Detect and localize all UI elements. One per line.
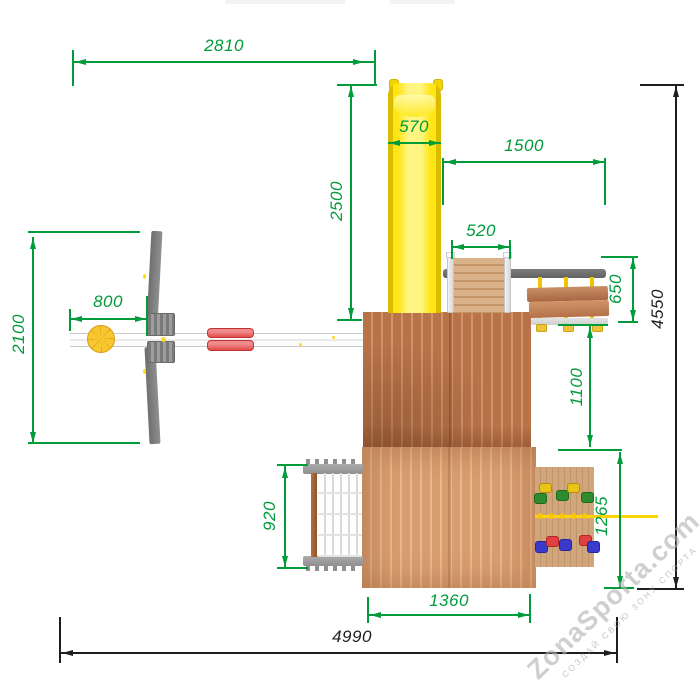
dim-label-2100: 2100 [9,314,29,354]
dim-label-2810: 2810 [204,36,244,56]
dim-label-2500: 2500 [327,181,347,221]
climbing-hold-yellow [567,483,580,493]
net-ropes [318,473,362,557]
swing-frame-leg-upper [147,231,163,324]
bench-foot [536,324,547,332]
climbing-hold-blue [559,539,572,551]
hardware-dot [143,369,146,374]
rope-knot [538,513,543,519]
dim-label-1500: 1500 [504,136,544,156]
dim-label-1360: 1360 [429,591,469,611]
dim-label-570: 570 [399,117,429,137]
ramp-rail-right [504,255,511,313]
hardware-dot [143,274,146,279]
swing-frame-hub-upper [147,313,175,336]
swing-frame-hub-lower [147,341,175,363]
hardware-dot [299,343,302,346]
cropped-title-remnant-left [225,0,345,4]
ramp-rail-left [447,255,454,313]
climbing-hold-red [546,536,559,547]
dim-label-920: 920 [260,501,280,531]
rope-knot [560,513,565,519]
lower-roof-top-view [362,447,536,588]
climbing-hold-blue [587,541,600,553]
hardware-dot [161,337,166,342]
cropped-title-remnant-right [390,0,455,4]
tire-swing-top-view [87,325,115,353]
lower-roof-ridge [448,447,451,588]
upper-roof-ridge [449,312,452,447]
bench-seat-plank [529,300,609,318]
rope-knot [571,513,576,519]
net-side-pole [311,473,317,557]
slide-hood-highlight [394,95,435,117]
hardware-dot [332,336,335,339]
rope-knot [582,513,587,519]
dim-label-520: 520 [466,221,496,241]
climbing-hold-yellow [539,483,552,493]
upper-roof-top-view [363,312,531,447]
dim-label-1265: 1265 [592,496,612,536]
swing-seat-front-edge [207,340,254,351]
net-bar-bottom [303,556,363,566]
dim-label-650: 650 [606,274,626,304]
dim-label-4990: 4990 [332,627,372,647]
ramp-steps-top-view [454,258,505,313]
swing-seat-back-edge [207,328,254,338]
climbing-hold-green [534,493,547,504]
dim-label-4550: 4550 [648,289,668,329]
rope-knot [549,513,554,519]
dim-label-800: 800 [93,292,123,312]
dim-label-1100: 1100 [567,368,587,407]
playground-top-view-drawing: 2810 2500 570 1500 520 [0,0,700,700]
